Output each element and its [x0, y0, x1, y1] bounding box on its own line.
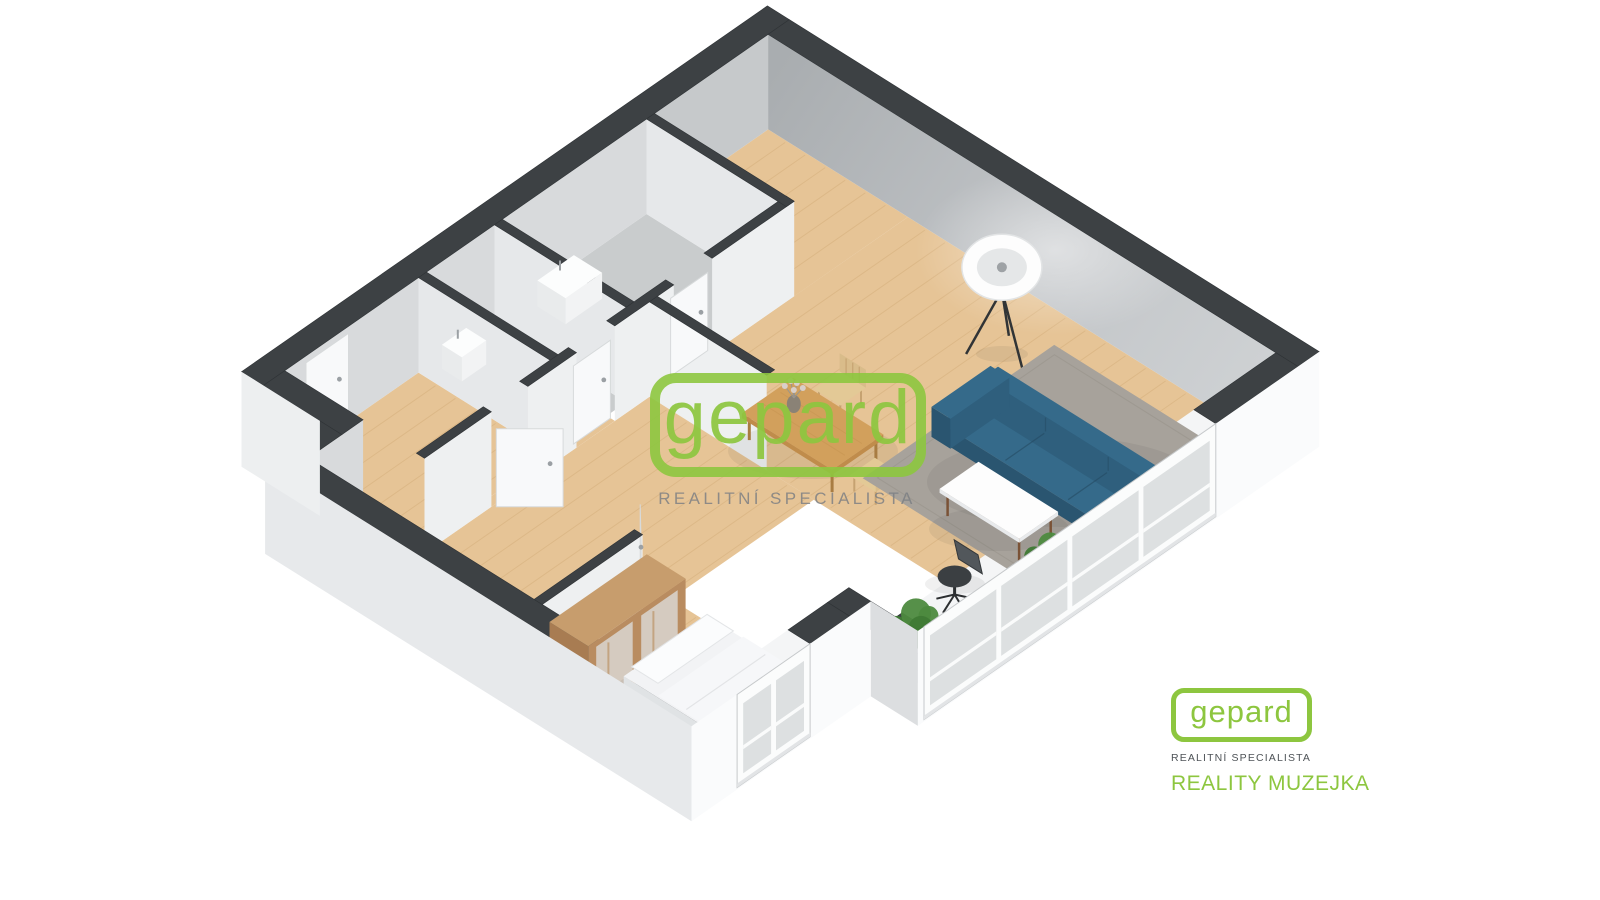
floor-plan-page: gepard REALITNÍ SPECIALISTA gepard REALI…	[0, 0, 1600, 900]
logo-frame: gepard	[1171, 688, 1312, 742]
logo-tagline: REALITNÍ SPECIALISTA	[1171, 752, 1371, 764]
logo-agency-name: REALITY MUZEJKA	[1171, 772, 1371, 796]
watermark-tagline: REALITNÍ SPECIALISTA	[658, 489, 916, 509]
logo-brand-text: gepard	[1190, 696, 1293, 734]
watermark-frame: gepard	[650, 373, 926, 477]
agency-logo-block: gepard REALITNÍ SPECIALISTA REALITY MUZE…	[1171, 688, 1371, 796]
watermark-brand-text: gepard	[664, 380, 913, 470]
